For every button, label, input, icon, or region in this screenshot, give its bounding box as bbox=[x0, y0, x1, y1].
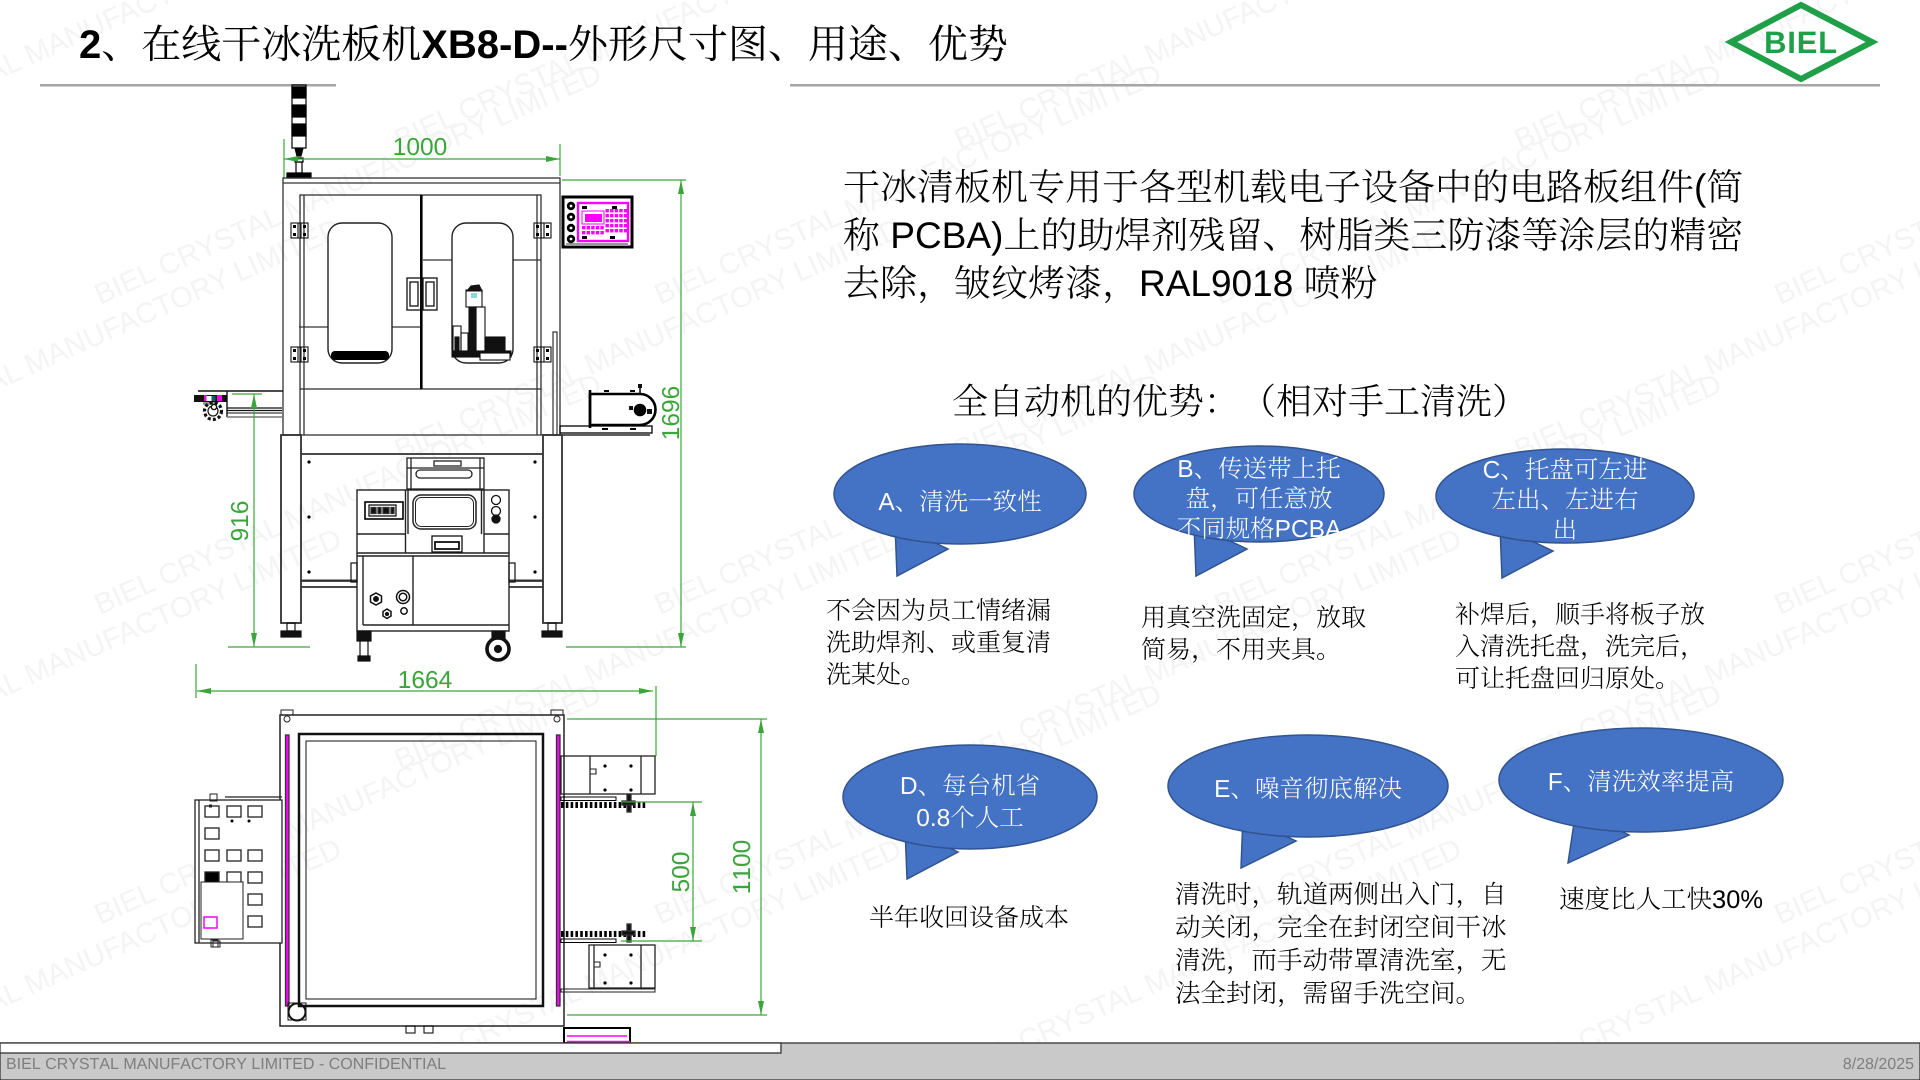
svg-text:BIEL CRYSTAL MANUFACTORY LIMIT: BIEL CRYSTAL MANUFACTORY LIMITED bbox=[90, 678, 607, 931]
svg-text:BIEL CRYSTAL MANUFACTORY LIMIT: BIEL CRYSTAL MANUFACTORY LIMITED bbox=[90, 368, 607, 621]
svg-text:BIEL CRYSTAL MANUFACTORY LIMIT: BIEL CRYSTAL MANUFACTORY LIMITED bbox=[650, 58, 1167, 311]
